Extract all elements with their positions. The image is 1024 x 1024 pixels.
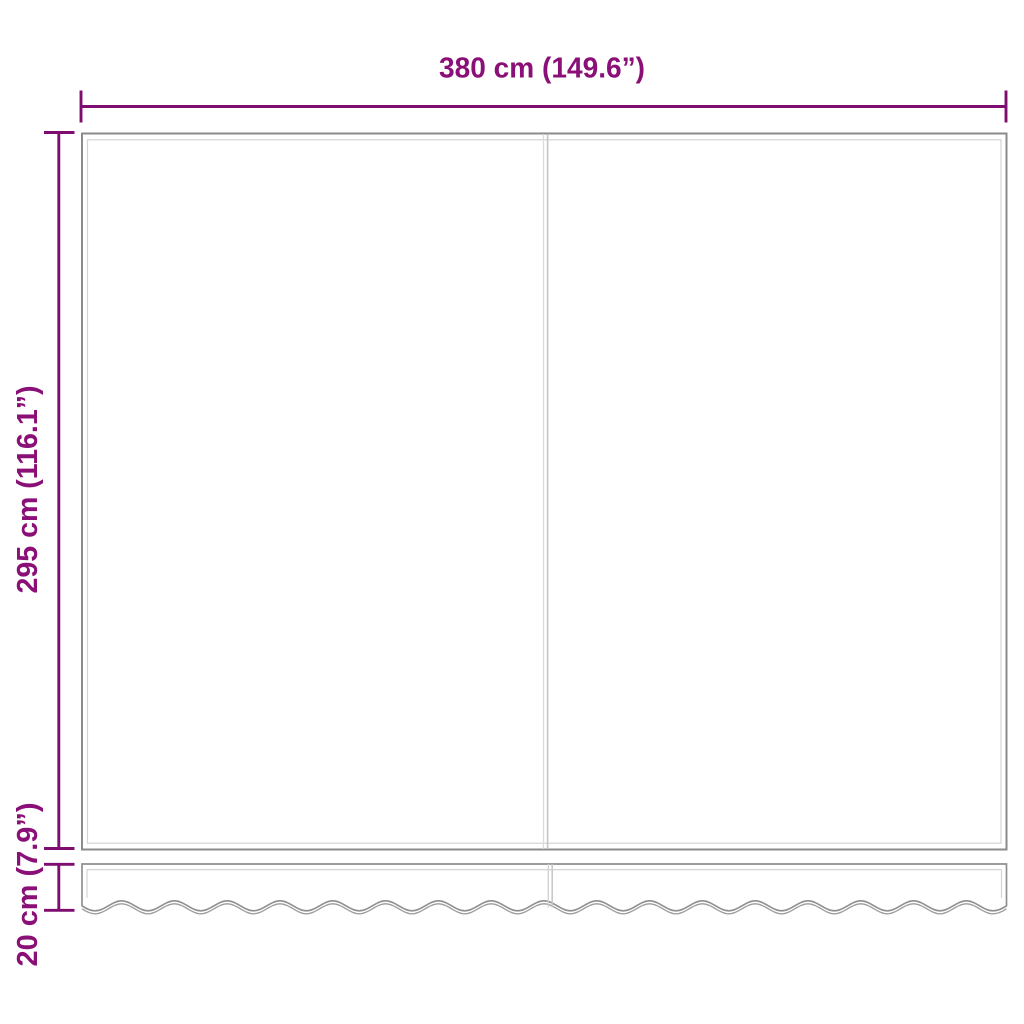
svg-text:295 cm (116.1”): 295 cm (116.1”) <box>12 386 44 594</box>
svg-text:380 cm (149.6”): 380 cm (149.6”) <box>439 53 645 85</box>
svg-text:20 cm (7.9”): 20 cm (7.9”) <box>12 803 44 967</box>
